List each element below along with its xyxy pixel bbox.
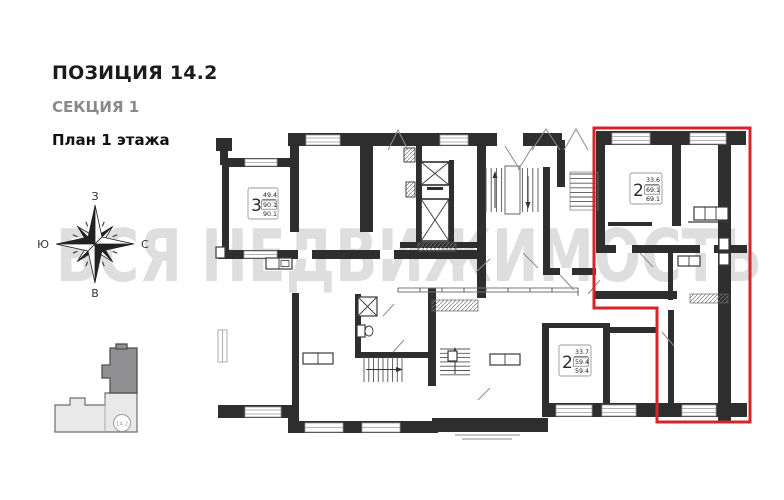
kitchen-counter bbox=[490, 354, 520, 365]
rooms-count: 2 bbox=[562, 353, 573, 373]
elevator-shaft-1 bbox=[421, 162, 449, 185]
compass-east-label: В bbox=[91, 287, 99, 300]
living-area: 33.7 bbox=[575, 349, 589, 356]
floor-plan-drawing: ВСЯ НЕДВИЖИМОСТЬ З В Ю С bbox=[0, 0, 784, 500]
living-area: 49.4 bbox=[263, 192, 277, 199]
living-area: 33.6 bbox=[646, 177, 660, 184]
full-area: 69.1 bbox=[646, 196, 660, 203]
minimap-highlighted-section bbox=[102, 348, 137, 393]
floor-plan-page: ПОЗИЦИЯ 14.2 СЕКЦИЯ 1 План 1 этажа ВСЯ Н… bbox=[0, 0, 784, 500]
apartment-label-3: 3 49.4 90.1 90.1 bbox=[248, 188, 278, 219]
full-area: 59.4 bbox=[575, 368, 589, 375]
apartment-label-2-bottom: 2 33.7 59.4 59.4 bbox=[559, 345, 591, 376]
entry-ramp-hatch bbox=[432, 300, 478, 311]
compass-west-label: З bbox=[91, 190, 98, 203]
wall-fixture bbox=[448, 351, 457, 361]
building-minimap: 14.2 bbox=[55, 344, 137, 432]
lower-staircase-left bbox=[364, 357, 403, 382]
shower-tray bbox=[358, 297, 377, 316]
minimap-position-label: 14.2 bbox=[116, 422, 128, 428]
wall-fixture bbox=[216, 247, 225, 258]
total-area: 69.1 bbox=[646, 187, 660, 194]
kitchen-counter bbox=[303, 353, 333, 364]
balcony-hatch bbox=[690, 294, 728, 303]
rooms-count: 2 bbox=[633, 181, 644, 201]
rooms-count: 3 bbox=[251, 196, 262, 216]
compass-north-label: С bbox=[141, 238, 149, 251]
kitchen-counter bbox=[266, 258, 292, 269]
full-area: 90.1 bbox=[263, 211, 277, 218]
toilet bbox=[357, 325, 373, 337]
duct-box bbox=[719, 238, 729, 250]
total-area: 90.1 bbox=[263, 202, 277, 209]
sink-counter bbox=[678, 256, 700, 266]
duct-box bbox=[719, 253, 729, 265]
kitchen-counter bbox=[688, 207, 730, 222]
main-staircase bbox=[486, 166, 538, 214]
compass-south-label: Ю bbox=[37, 238, 49, 251]
apartment-label-2-highlighted: 2 33.6 69.1 69.1 bbox=[630, 173, 662, 204]
elevator-shaft-2 bbox=[421, 199, 449, 241]
total-area: 59.4 bbox=[575, 359, 589, 366]
